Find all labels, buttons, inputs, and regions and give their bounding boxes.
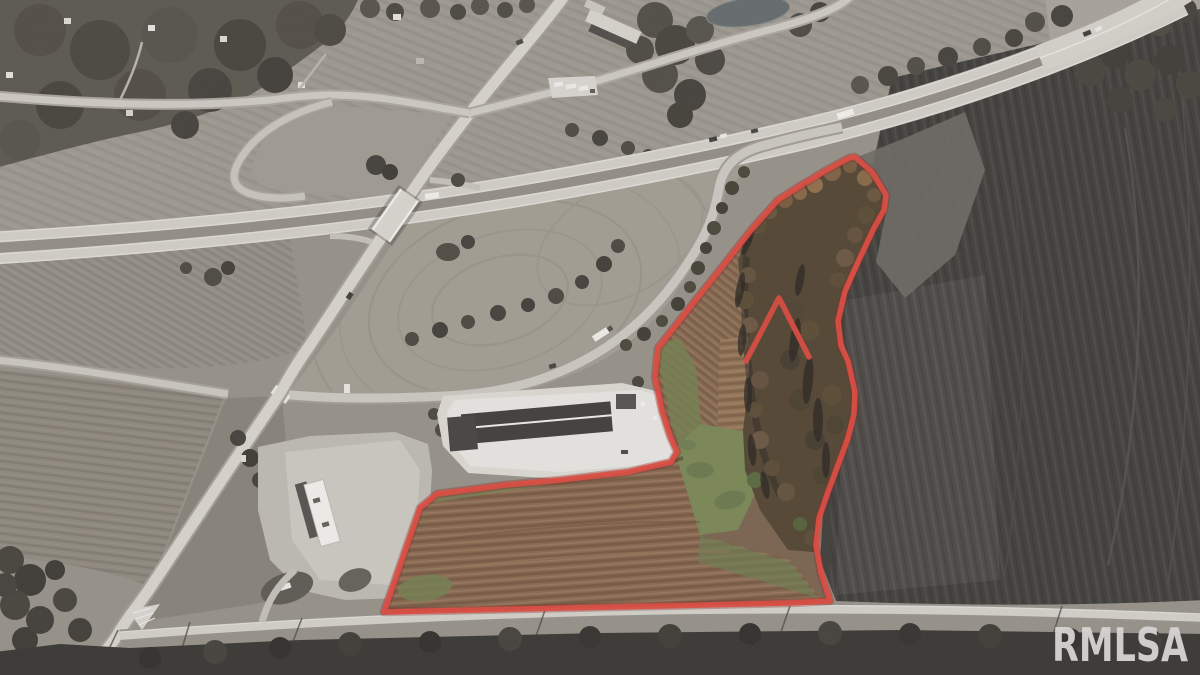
photo-grain-overlay [0, 0, 1200, 675]
aerial-photo: RMLSA [0, 0, 1200, 675]
watermark-logo: RMLSA [1052, 618, 1188, 672]
aerial-photo-canvas: RMLSA [0, 0, 1200, 675]
